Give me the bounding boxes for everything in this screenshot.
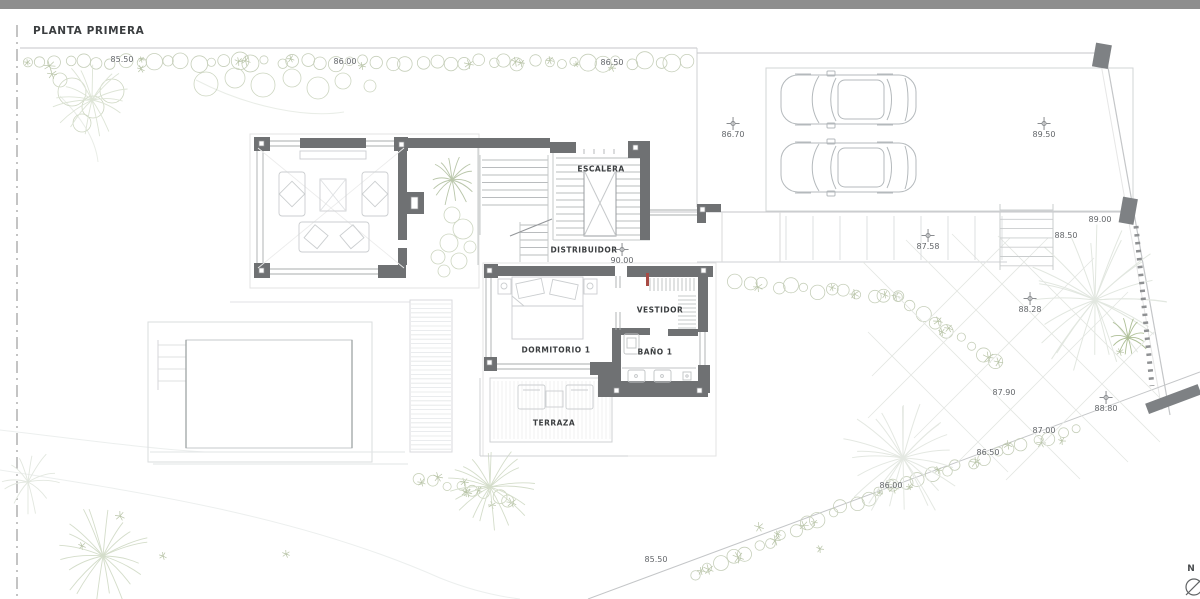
site-boundary-lines	[0, 25, 1200, 599]
house-walls	[254, 137, 721, 397]
bathroom-fixtures	[622, 334, 696, 382]
car-icon	[781, 139, 916, 196]
vegetation-and-paving-layer	[2, 52, 1168, 599]
floor-plan-canvas: PLANTA PRIMERA ESCALERA DISTRIBUIDOR DOR…	[0, 0, 1200, 599]
north-arrow-icon	[1186, 579, 1200, 595]
car-icon	[781, 71, 916, 128]
boundary-wall-segments	[1092, 43, 1200, 414]
closet-accent-mark	[646, 273, 649, 286]
staircase-details	[510, 170, 616, 236]
floor-plan-drawing	[0, 0, 1200, 599]
